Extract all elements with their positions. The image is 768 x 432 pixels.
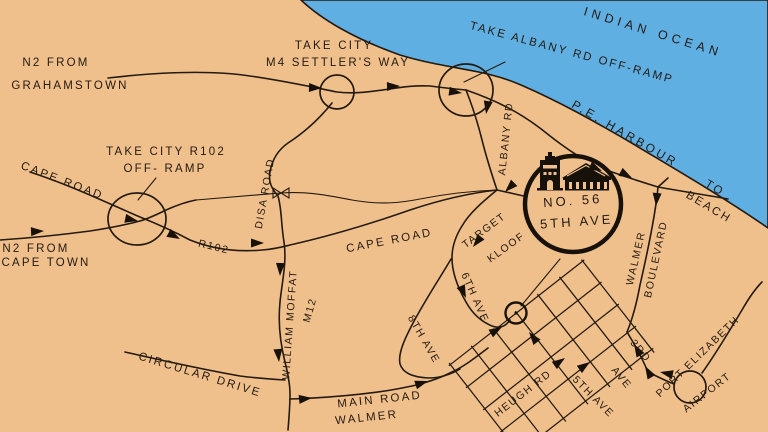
destination-dot — [514, 311, 517, 314]
label-n2-from-capetown-1: N2 FROM — [2, 243, 69, 255]
label-n2-from-capetown-2: CAPE TOWN — [1, 257, 90, 269]
label-take-city-r102: TAKE CITY R102 — [106, 146, 226, 158]
label-r102-off-ramp: OFF- RAMP — [123, 163, 206, 175]
label-n2-from-grahamstown-2: GRAHAMSTOWN — [11, 80, 128, 92]
map-canvas: INDIAN OCEAN TAKE ALBANY RD OFF-RAMP TAK… — [0, 0, 768, 432]
label-m4-settlers-way: M4 SETTLER'S WAY — [266, 57, 410, 69]
label-take-city: TAKE CITY — [295, 40, 373, 52]
directions-map: INDIAN OCEAN TAKE ALBANY RD OFF-RAMP TAK… — [0, 0, 768, 432]
label-n2-from-grahamstown-1: N2 FROM — [22, 57, 89, 69]
